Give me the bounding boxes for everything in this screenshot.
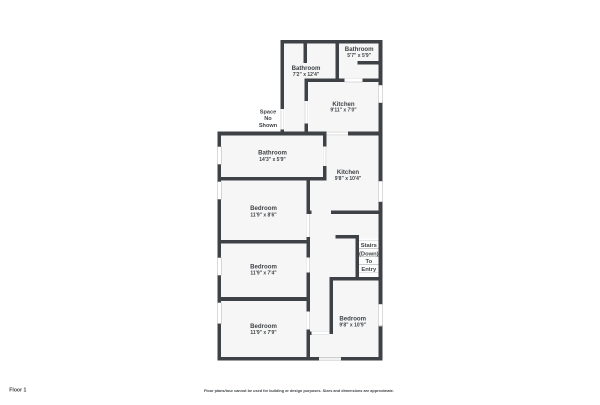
- svg-text:Kitchen: Kitchen: [337, 169, 360, 176]
- svg-text:No: No: [264, 116, 272, 122]
- svg-text:Bedroom: Bedroom: [339, 316, 366, 323]
- svg-text:11'9" x 7'9": 11'9" x 7'9": [250, 330, 277, 336]
- svg-text:Shown: Shown: [259, 123, 278, 129]
- svg-text:To: To: [365, 259, 372, 265]
- svg-text:Stairs: Stairs: [361, 243, 377, 249]
- svg-text:14'3" x 5'9": 14'3" x 5'9": [259, 157, 286, 163]
- svg-text:Bedroom: Bedroom: [250, 205, 277, 212]
- svg-text:Space: Space: [260, 110, 276, 116]
- svg-text:(Down): (Down): [359, 251, 379, 257]
- svg-text:Entry: Entry: [361, 267, 377, 273]
- svg-text:Bathroom: Bathroom: [258, 149, 287, 156]
- svg-text:9'11" x 7'0": 9'11" x 7'0": [330, 108, 357, 114]
- svg-text:Bathroom: Bathroom: [292, 65, 321, 72]
- svg-text:Floor 1: Floor 1: [9, 387, 26, 393]
- svg-text:Floor plans/tour cannot be use: Floor plans/tour cannot be used for buil…: [204, 388, 394, 393]
- svg-text:5'7" x 5'9": 5'7" x 5'9": [347, 53, 371, 59]
- svg-text:7'2" x 12'4": 7'2" x 12'4": [293, 72, 320, 78]
- svg-text:9'8" x 10'9": 9'8" x 10'9": [339, 323, 366, 329]
- svg-text:11'9" x 7'4": 11'9" x 7'4": [250, 271, 277, 277]
- svg-text:11'9" x 8'6": 11'9" x 8'6": [250, 213, 277, 219]
- svg-text:9'8" x 10'4": 9'8" x 10'4": [335, 176, 362, 182]
- svg-text:Bedroom: Bedroom: [250, 263, 277, 270]
